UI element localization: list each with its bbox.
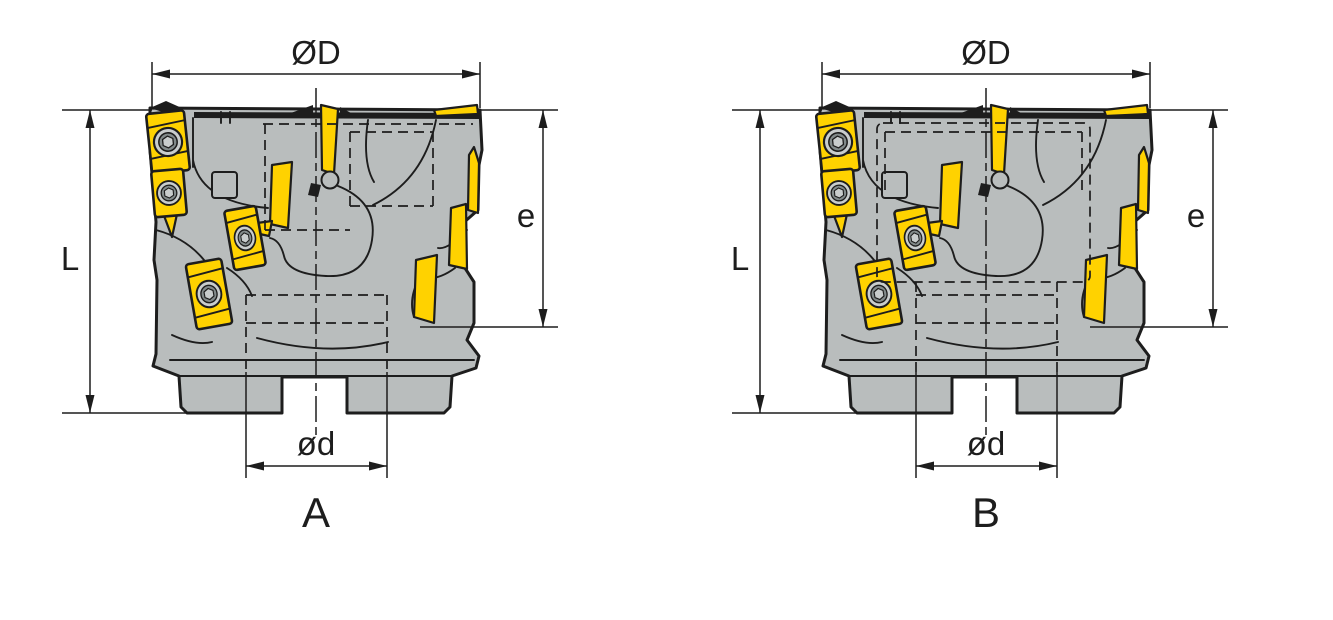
figure-letter-b: B bbox=[972, 489, 1000, 536]
technical-drawing: ØD L e ød A ØD L e ød B bbox=[0, 0, 1333, 620]
dim-label-l-b: L bbox=[731, 240, 749, 277]
dim-label-e-b: e bbox=[1187, 197, 1205, 234]
figure-letter-a: A bbox=[302, 489, 330, 536]
dim-label-l-a: L bbox=[61, 240, 79, 277]
cutter-b bbox=[816, 88, 1152, 440]
drawing-canvas: ØD L e ød A ØD L e ød B bbox=[0, 0, 1333, 620]
figure-a: ØD L e ød A bbox=[61, 34, 558, 536]
dim-label-d-b: ød bbox=[967, 425, 1006, 462]
dim-label-od-b: ØD bbox=[961, 34, 1011, 71]
figure-b: ØD L e ød B bbox=[731, 34, 1228, 536]
dim-label-e-a: e bbox=[517, 197, 535, 234]
cutter-a bbox=[146, 88, 482, 440]
dim-label-d-a: ød bbox=[297, 425, 336, 462]
dim-label-od-a: ØD bbox=[291, 34, 341, 71]
